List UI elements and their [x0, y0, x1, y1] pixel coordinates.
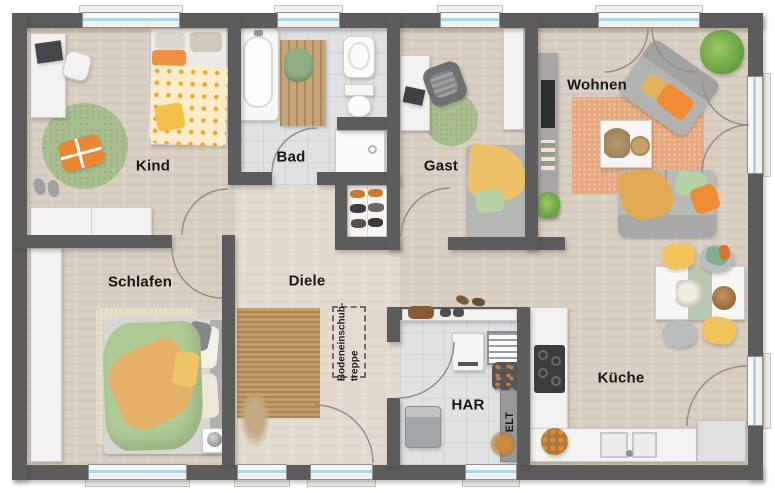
room-label-har: HAR — [451, 397, 484, 414]
window — [88, 464, 187, 480]
tv — [541, 80, 555, 128]
pillow — [190, 32, 222, 52]
heater-vent — [458, 362, 478, 366]
wall — [12, 235, 172, 248]
window-sill — [763, 353, 771, 429]
wall — [337, 117, 387, 130]
shoes — [368, 189, 383, 197]
wall — [517, 320, 530, 465]
shoes — [440, 308, 451, 317]
shoes — [368, 203, 384, 212]
kitchen-sink — [600, 432, 628, 458]
pillow — [172, 350, 200, 387]
speaker — [207, 432, 222, 447]
shower — [335, 130, 385, 173]
window-sill — [462, 479, 520, 487]
wardrobe — [503, 28, 525, 130]
folded-blanket — [154, 102, 186, 132]
books — [541, 140, 555, 170]
window — [465, 464, 517, 480]
room-label-schlafen: Schlafen — [108, 274, 172, 291]
patio-door — [747, 356, 763, 426]
window — [82, 12, 180, 28]
pillow — [155, 32, 185, 50]
window-sill — [307, 479, 376, 487]
faucet — [626, 450, 633, 457]
shoes — [351, 219, 366, 228]
attic-stairs-label: Bodeneinschub- treppe — [337, 303, 362, 381]
toilet-bowl — [347, 95, 371, 117]
wall — [241, 172, 272, 185]
window-sill — [234, 479, 290, 487]
dining-chair — [662, 320, 697, 348]
wardrobe — [30, 248, 63, 462]
wall — [387, 13, 400, 250]
patio-door — [598, 12, 700, 28]
wall — [448, 237, 565, 250]
bag — [408, 306, 434, 319]
washing-machine — [405, 406, 441, 448]
room-label-kueche: Küche — [598, 370, 645, 387]
window — [440, 12, 500, 28]
wall — [525, 13, 538, 250]
pillow — [475, 188, 506, 214]
room-label-elt: ELT — [504, 412, 516, 433]
shoes — [453, 308, 464, 317]
basket-lid — [630, 136, 650, 156]
wall — [222, 235, 235, 465]
wall — [335, 185, 347, 237]
bathtub-basin — [243, 36, 273, 108]
washbasin-bowl — [348, 42, 370, 70]
fridge — [697, 420, 746, 462]
dried-plant — [604, 126, 630, 158]
room-label-gast: Gast — [424, 158, 458, 175]
faucet — [254, 30, 263, 36]
room-label-kind: Kind — [136, 158, 170, 175]
shoes — [350, 204, 366, 213]
entrance-door — [310, 464, 373, 480]
room-label-wohnen: Wohnen — [567, 77, 627, 94]
room-label-bad: Bad — [277, 149, 306, 166]
wall — [387, 320, 400, 342]
floor-plan: Kind Bad Gast Wohnen Schlafen Diele HAR … — [0, 0, 775, 493]
kitchen-sink — [632, 432, 657, 458]
french-door — [747, 76, 763, 174]
window-sill — [85, 479, 190, 487]
sideboard — [30, 207, 152, 236]
window — [237, 464, 287, 480]
shower-drain — [368, 145, 377, 154]
bowl — [712, 286, 736, 310]
pillow — [152, 50, 186, 66]
burner — [538, 368, 548, 378]
wall — [387, 398, 400, 465]
monitor — [35, 40, 64, 63]
attic-stairs-box: Bodeneinschub- treppe — [332, 306, 366, 378]
window — [277, 12, 340, 28]
burner — [551, 356, 561, 366]
flower-bouquet — [676, 280, 702, 308]
burner — [538, 350, 548, 360]
window-sill — [763, 73, 771, 177]
towel-pile — [284, 48, 314, 82]
shoes — [368, 218, 383, 227]
dried-grass-plant — [240, 395, 270, 447]
dried-flowers — [490, 430, 516, 458]
shoes — [350, 190, 365, 198]
plant — [700, 30, 744, 74]
fruit-basket — [541, 428, 568, 455]
room-label-diele: Diele — [289, 273, 326, 290]
plant — [536, 192, 560, 218]
burner — [551, 376, 561, 386]
wall — [228, 13, 241, 185]
